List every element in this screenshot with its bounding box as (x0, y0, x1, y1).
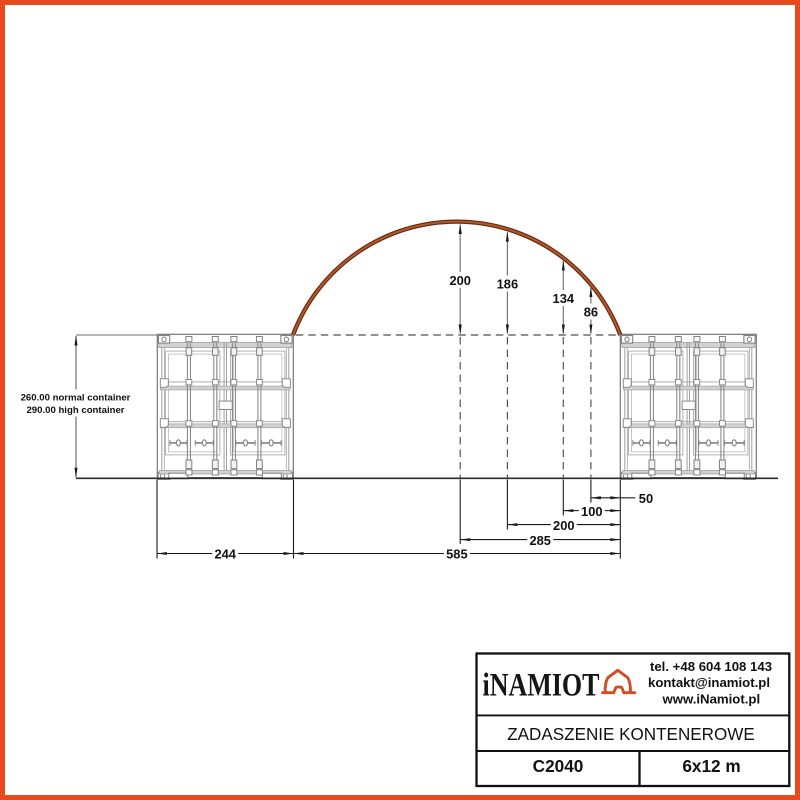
svg-text:C2040: C2040 (533, 756, 584, 776)
svg-text:134: 134 (553, 291, 575, 306)
svg-text:260.00 normal container: 260.00 normal container (21, 392, 131, 403)
svg-text:585: 585 (446, 547, 468, 562)
svg-text:200: 200 (449, 273, 471, 288)
svg-text:285: 285 (529, 533, 551, 548)
svg-text:50: 50 (639, 491, 653, 506)
svg-text:6x12 m: 6x12 m (682, 756, 740, 776)
svg-text:86: 86 (584, 305, 598, 320)
svg-text:290.00 high container: 290.00 high container (26, 405, 124, 416)
svg-text:200: 200 (553, 518, 575, 533)
svg-text:iNAMIOT: iNAMIOT (483, 668, 600, 704)
svg-text:ZADASZENIE KONTENEROWE: ZADASZENIE KONTENEROWE (507, 724, 755, 744)
svg-text:100: 100 (581, 504, 603, 519)
svg-text:186: 186 (497, 277, 519, 292)
svg-text:244: 244 (214, 547, 236, 562)
svg-text:kontakt@inamiot.pl: kontakt@inamiot.pl (648, 675, 770, 690)
svg-text:www.iNamiot.pl: www.iNamiot.pl (661, 692, 760, 707)
svg-text:tel. +48 604 108 143: tel. +48 604 108 143 (650, 659, 772, 674)
